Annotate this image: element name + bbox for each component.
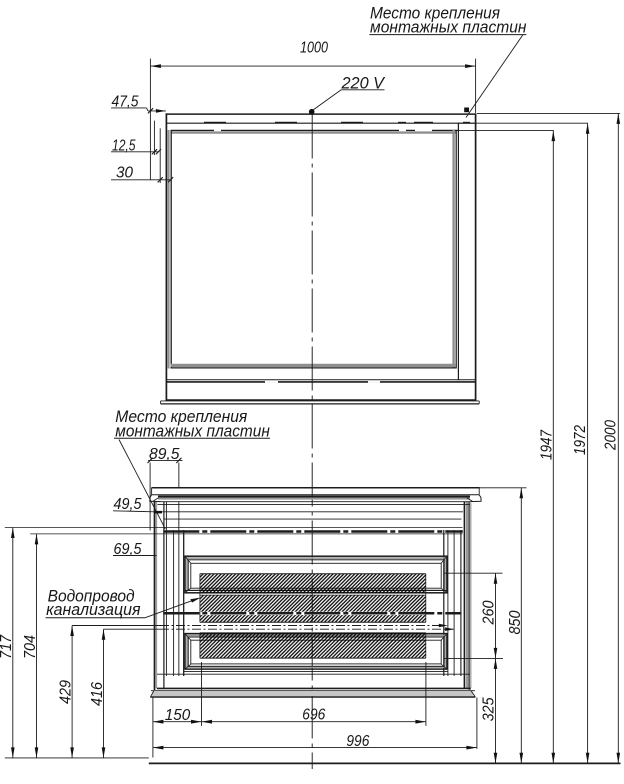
svg-text:416: 416	[89, 682, 106, 706]
svg-text:30: 30	[116, 165, 133, 182]
svg-text:монтажных пластин: монтажных пластин	[370, 18, 527, 37]
svg-text:1972: 1972	[572, 425, 589, 455]
svg-text:260: 260	[480, 600, 497, 625]
svg-text:850: 850	[507, 610, 524, 634]
svg-text:1000: 1000	[300, 39, 328, 56]
svg-text:325: 325	[480, 697, 497, 721]
svg-text:1947: 1947	[539, 429, 556, 460]
svg-text:429: 429	[57, 680, 74, 704]
svg-text:996: 996	[346, 733, 369, 750]
svg-text:717: 717	[0, 634, 15, 659]
svg-text:канализация: канализация	[46, 600, 140, 619]
svg-text:704: 704	[22, 635, 39, 659]
svg-text:696: 696	[302, 707, 325, 724]
svg-text:150: 150	[165, 707, 191, 724]
svg-text:2000: 2000	[602, 420, 619, 451]
